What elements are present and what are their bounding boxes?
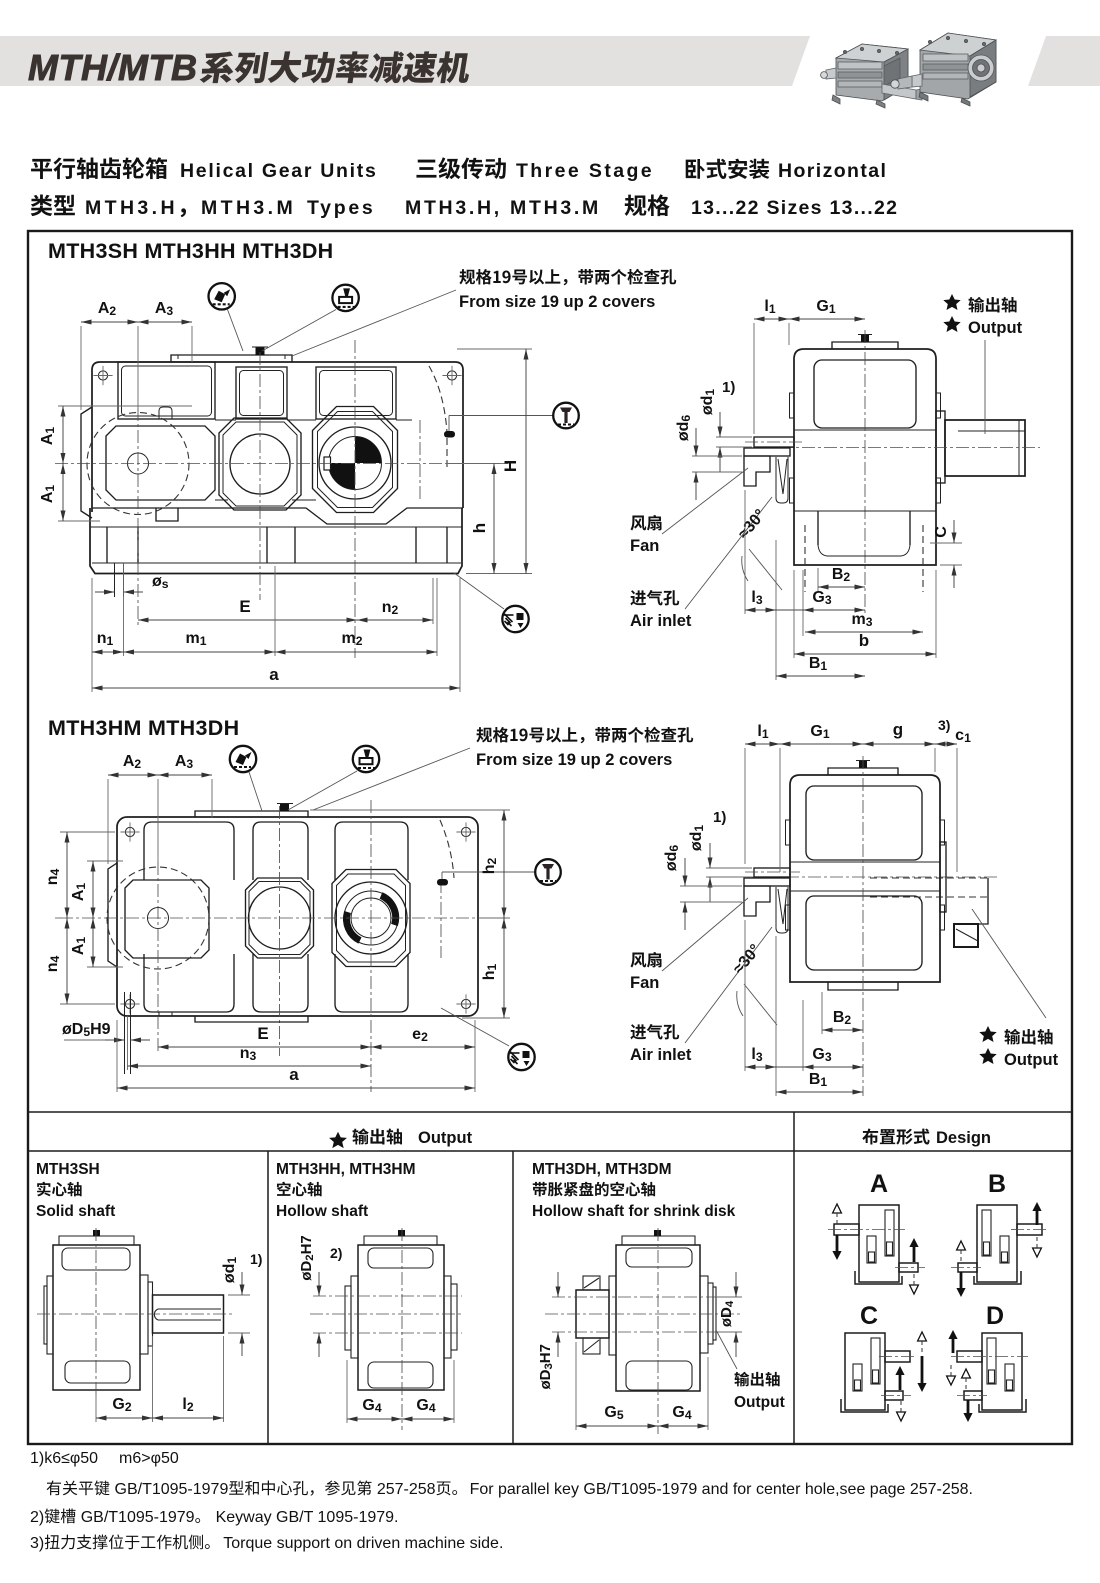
svg-text:G5: G5: [604, 1404, 623, 1422]
svg-text:g: g: [893, 720, 903, 739]
svg-text:G4: G4: [672, 1404, 691, 1422]
svg-text:A1: A1: [70, 883, 88, 902]
svg-text:13...22 Sizes 13...22: 13...22 Sizes 13...22: [691, 197, 898, 219]
svg-text:From size 19 up 2 covers: From size 19 up 2 covers: [476, 751, 672, 769]
svg-text:1)k6≤φ50: 1)k6≤φ50: [30, 1450, 98, 1467]
svg-text:n4: n4: [44, 868, 62, 885]
svg-text:n4: n4: [44, 955, 62, 972]
svg-text:B2: B2: [832, 566, 851, 584]
svg-text:For parallel key GB/T1095-1979: For parallel key GB/T1095-1979 and for c…: [470, 1481, 973, 1498]
svg-text:Keyway GB/T 1095-1979.: Keyway GB/T 1095-1979.: [216, 1509, 399, 1526]
svg-text:1): 1): [250, 1251, 262, 1267]
svg-text:≈30°: ≈30°: [730, 941, 764, 977]
svg-text:a: a: [269, 665, 279, 684]
svg-text:Hollow shaft for shrink disk: Hollow shaft for shrink disk: [532, 1203, 736, 1220]
svg-text:G3: G3: [812, 589, 831, 607]
svg-text:ød6: ød6: [663, 845, 681, 872]
svg-text:D: D: [986, 1302, 1004, 1330]
svg-text:E: E: [257, 1024, 268, 1043]
svg-text:MTH3SH: MTH3SH: [36, 1161, 100, 1178]
svg-text:l3: l3: [751, 589, 762, 607]
svg-text:A2: A2: [123, 753, 142, 771]
svg-text:Output: Output: [1004, 1051, 1059, 1069]
svg-text:B1: B1: [809, 1071, 828, 1089]
svg-text:MTH3HM MTH3DH: MTH3HM MTH3DH: [48, 716, 239, 740]
svg-text:≈30°: ≈30°: [735, 506, 769, 542]
svg-text:MTH3DH, MTH3DM: MTH3DH, MTH3DM: [532, 1161, 672, 1178]
svg-text:G1: G1: [810, 723, 829, 741]
svg-text:h: h: [470, 523, 489, 533]
svg-text:3): 3): [938, 717, 950, 733]
svg-text:From size 19 up 2 covers: From size 19 up 2 covers: [459, 293, 655, 311]
svg-text:l1: l1: [757, 723, 768, 741]
svg-text:Output: Output: [968, 319, 1023, 337]
svg-text:GB/T1095-1979: GB/T1095-1979: [81, 1509, 195, 1526]
svg-text:n3: n3: [240, 1045, 257, 1063]
svg-text:Design: Design: [936, 1129, 991, 1147]
svg-text:Three Stage: Three Stage: [516, 160, 654, 182]
svg-text:2): 2): [330, 1245, 342, 1261]
svg-text:MTH/MTB: MTH/MTB: [28, 47, 197, 88]
svg-text:MTH3HH, MTH3HM: MTH3HH, MTH3HM: [276, 1161, 416, 1178]
svg-text:MTH3.H: MTH3.H: [85, 197, 178, 219]
svg-text:l1: l1: [764, 298, 775, 316]
svg-text:øD4: øD4: [718, 1300, 736, 1327]
svg-text:H: H: [501, 460, 520, 472]
svg-text:m2: m2: [342, 630, 363, 648]
svg-text:Fan: Fan: [630, 974, 659, 992]
svg-text:3): 3): [30, 1535, 44, 1552]
svg-text:Air inlet: Air inlet: [630, 1046, 692, 1064]
svg-text:A: A: [870, 1170, 888, 1198]
svg-text:øD3H7: øD3H7: [537, 1344, 555, 1390]
svg-text:A3: A3: [155, 300, 174, 318]
svg-text:C: C: [860, 1302, 878, 1330]
svg-text:Air inlet: Air inlet: [630, 612, 692, 630]
svg-text:1): 1): [722, 379, 735, 396]
svg-text:m3: m3: [852, 611, 873, 629]
svg-text:øs: øs: [152, 573, 169, 591]
svg-text:2): 2): [30, 1509, 44, 1526]
svg-text:l3: l3: [751, 1046, 762, 1064]
svg-text:Solid shaft: Solid shaft: [36, 1203, 115, 1220]
svg-text:B1: B1: [809, 655, 828, 673]
svg-text:B: B: [988, 1170, 1006, 1198]
svg-text:a: a: [289, 1065, 299, 1084]
svg-text:øD5H9: øD5H9: [62, 1021, 111, 1039]
svg-text:Output: Output: [418, 1129, 473, 1147]
svg-text:m1: m1: [186, 630, 207, 648]
svg-text:ød1: ød1: [221, 1257, 239, 1284]
svg-text:Helical Gear Units: Helical Gear Units: [180, 160, 378, 182]
svg-text:MTH3.H, MTH3.M: MTH3.H, MTH3.M: [405, 197, 601, 219]
svg-text:G1: G1: [816, 298, 835, 316]
svg-text:øD2H7: øD2H7: [298, 1235, 316, 1281]
svg-text:G4: G4: [416, 1397, 435, 1415]
svg-text:A1: A1: [70, 937, 88, 956]
svg-text:h2: h2: [481, 857, 499, 874]
svg-text:b: b: [859, 631, 869, 650]
svg-text:Output: Output: [734, 1394, 785, 1411]
svg-text:l2: l2: [182, 1396, 193, 1414]
svg-text:c1: c1: [955, 727, 971, 745]
svg-text:h1: h1: [481, 963, 499, 980]
svg-text:MTH3.M: MTH3.M: [201, 197, 296, 219]
svg-text:MTH3SH MTH3HH MTH3DH: MTH3SH MTH3HH MTH3DH: [48, 239, 334, 263]
svg-text:E: E: [239, 597, 250, 616]
svg-text:Torque support on driven machi: Torque support on driven machine side.: [223, 1535, 503, 1552]
svg-text:e2: e2: [412, 1026, 428, 1044]
svg-text:Types: Types: [307, 197, 375, 219]
svg-text:G3: G3: [812, 1046, 831, 1064]
svg-text:m6>φ50: m6>φ50: [119, 1450, 179, 1467]
svg-text:B2: B2: [833, 1009, 852, 1027]
svg-text:ød1: ød1: [699, 389, 717, 416]
svg-text:G4: G4: [362, 1397, 381, 1415]
svg-text:C: C: [933, 526, 950, 538]
svg-text:G2: G2: [112, 1396, 131, 1414]
svg-text:n2: n2: [382, 599, 399, 617]
svg-text:Hollow shaft: Hollow shaft: [276, 1203, 368, 1220]
svg-text:A1: A1: [39, 427, 57, 446]
svg-text:A2: A2: [98, 300, 117, 318]
svg-text:A3: A3: [175, 753, 194, 771]
svg-text:GB/T1095-1979: GB/T1095-1979: [115, 1481, 229, 1498]
svg-text:A1: A1: [39, 485, 57, 504]
svg-text:1): 1): [713, 809, 726, 826]
svg-text:Horizontal: Horizontal: [778, 160, 887, 182]
svg-text:n1: n1: [97, 630, 114, 648]
svg-text:ød1: ød1: [688, 825, 706, 852]
svg-text:257-258: 257-258: [377, 1481, 436, 1498]
svg-text:ød6: ød6: [675, 415, 693, 442]
svg-text:Fan: Fan: [630, 537, 659, 555]
